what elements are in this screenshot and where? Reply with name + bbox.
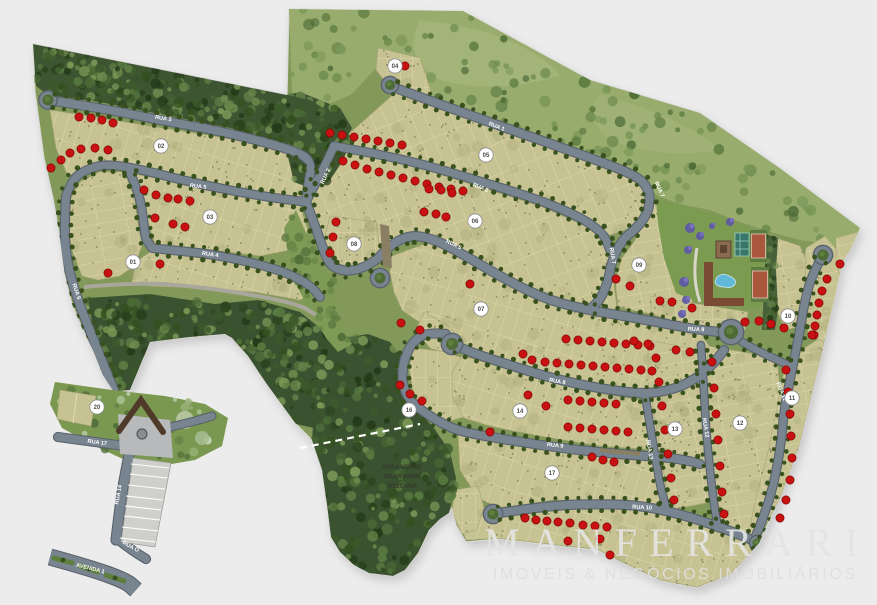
svg-text:07: 07 [478, 307, 485, 313]
svg-text:10: 10 [785, 314, 792, 320]
svg-text:20: 20 [94, 405, 101, 411]
svg-text:14: 14 [517, 409, 524, 415]
svg-text:ÁREA VERDE: ÁREA VERDE [382, 464, 422, 471]
svg-text:GRAN PARK: GRAN PARK [383, 474, 421, 481]
svg-text:03: 03 [207, 215, 214, 221]
svg-text:02: 02 [158, 144, 165, 150]
svg-text:RUA 10: RUA 10 [632, 504, 652, 511]
svg-text:04: 04 [392, 64, 399, 70]
svg-text:09: 09 [636, 263, 643, 269]
svg-text:11: 11 [789, 396, 796, 402]
svg-text:01: 01 [130, 260, 137, 266]
svg-text:12: 12 [737, 421, 744, 427]
svg-text:TOSCANA: TOSCANA [387, 483, 418, 490]
svg-text:RUA 8: RUA 8 [688, 327, 705, 334]
svg-text:08: 08 [351, 242, 358, 248]
svg-text:06: 06 [472, 219, 479, 225]
svg-text:13: 13 [672, 427, 679, 433]
svg-text:17: 17 [549, 471, 556, 477]
svg-text:16: 16 [406, 408, 413, 414]
svg-text:05: 05 [483, 153, 490, 159]
